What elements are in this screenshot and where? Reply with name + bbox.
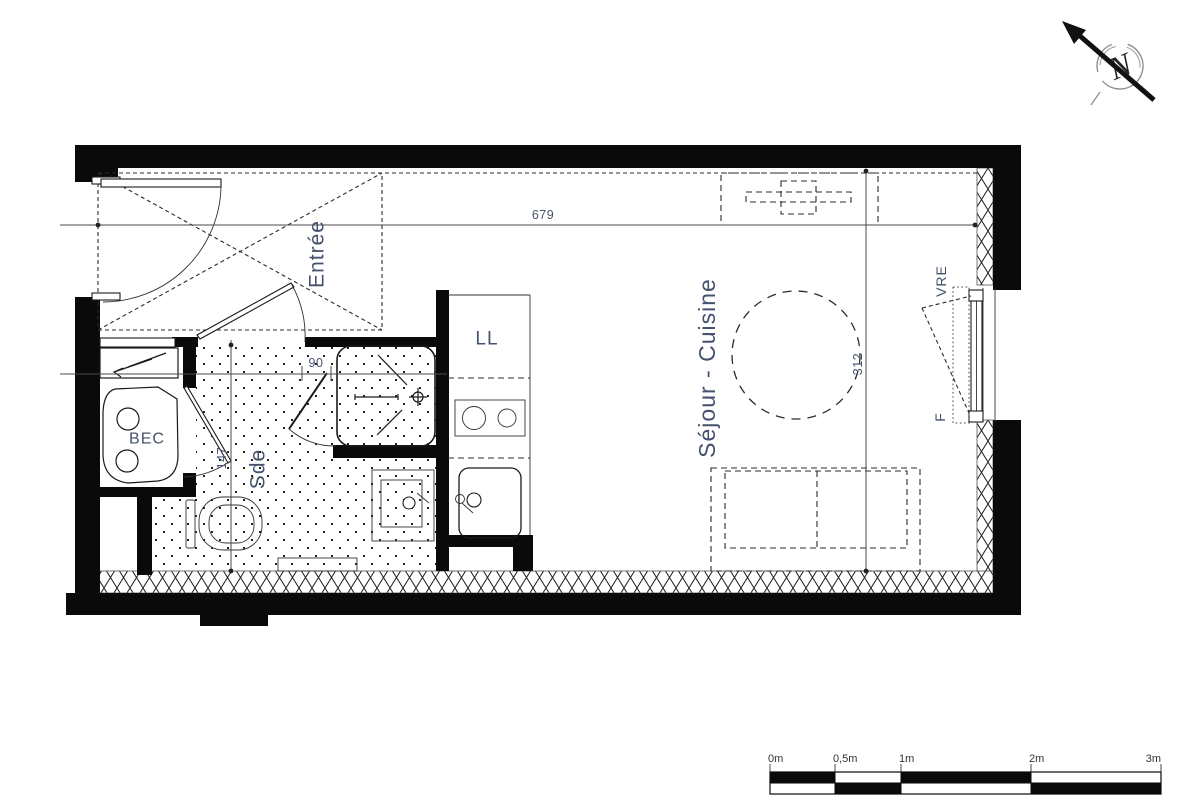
furniture-sofa [711, 468, 920, 571]
sde-door [197, 283, 305, 342]
duct-arrow-icon [114, 353, 166, 372]
window-assembly: VRE F [922, 265, 995, 423]
scale-label-2m: 2m [1029, 753, 1044, 765]
room-label-sejour-cuisine: Séjour - Cuisine [694, 278, 720, 458]
floor-plan: BEC LL V [0, 0, 1181, 800]
window-label: F [932, 412, 948, 422]
room-label-entree: Entrée [306, 220, 329, 288]
entry-closet [98, 173, 977, 330]
bec-unit: BEC [103, 387, 178, 483]
dim-90: 90 [309, 356, 324, 370]
north-arrow: N [1062, 21, 1154, 105]
scale-bar: 0m 0,5m 1m 2m 3m [768, 753, 1161, 794]
dim-147: 147 [215, 447, 229, 469]
furniture-wall-cabinet [721, 173, 878, 225]
shutter-label: VRE [933, 265, 949, 297]
entrance-door [92, 177, 221, 302]
dim-312: 312 [851, 353, 865, 375]
scale-label-1m: 1m [899, 753, 914, 765]
technical-duct [100, 338, 178, 378]
scale-label-0m: 0m [768, 753, 783, 765]
kitchen-counter: LL [448, 295, 530, 538]
bec-label: BEC [129, 431, 165, 448]
washing-machine-label: LL [475, 329, 498, 350]
furniture-round-table [732, 291, 860, 419]
room-label-sde: Sde [247, 449, 270, 489]
kitchen-sink [456, 468, 522, 538]
scale-label-05m: 0,5m [833, 753, 857, 765]
cooktop [455, 400, 525, 436]
dim-679: 679 [532, 208, 554, 222]
scale-label-3m: 3m [1146, 753, 1161, 765]
